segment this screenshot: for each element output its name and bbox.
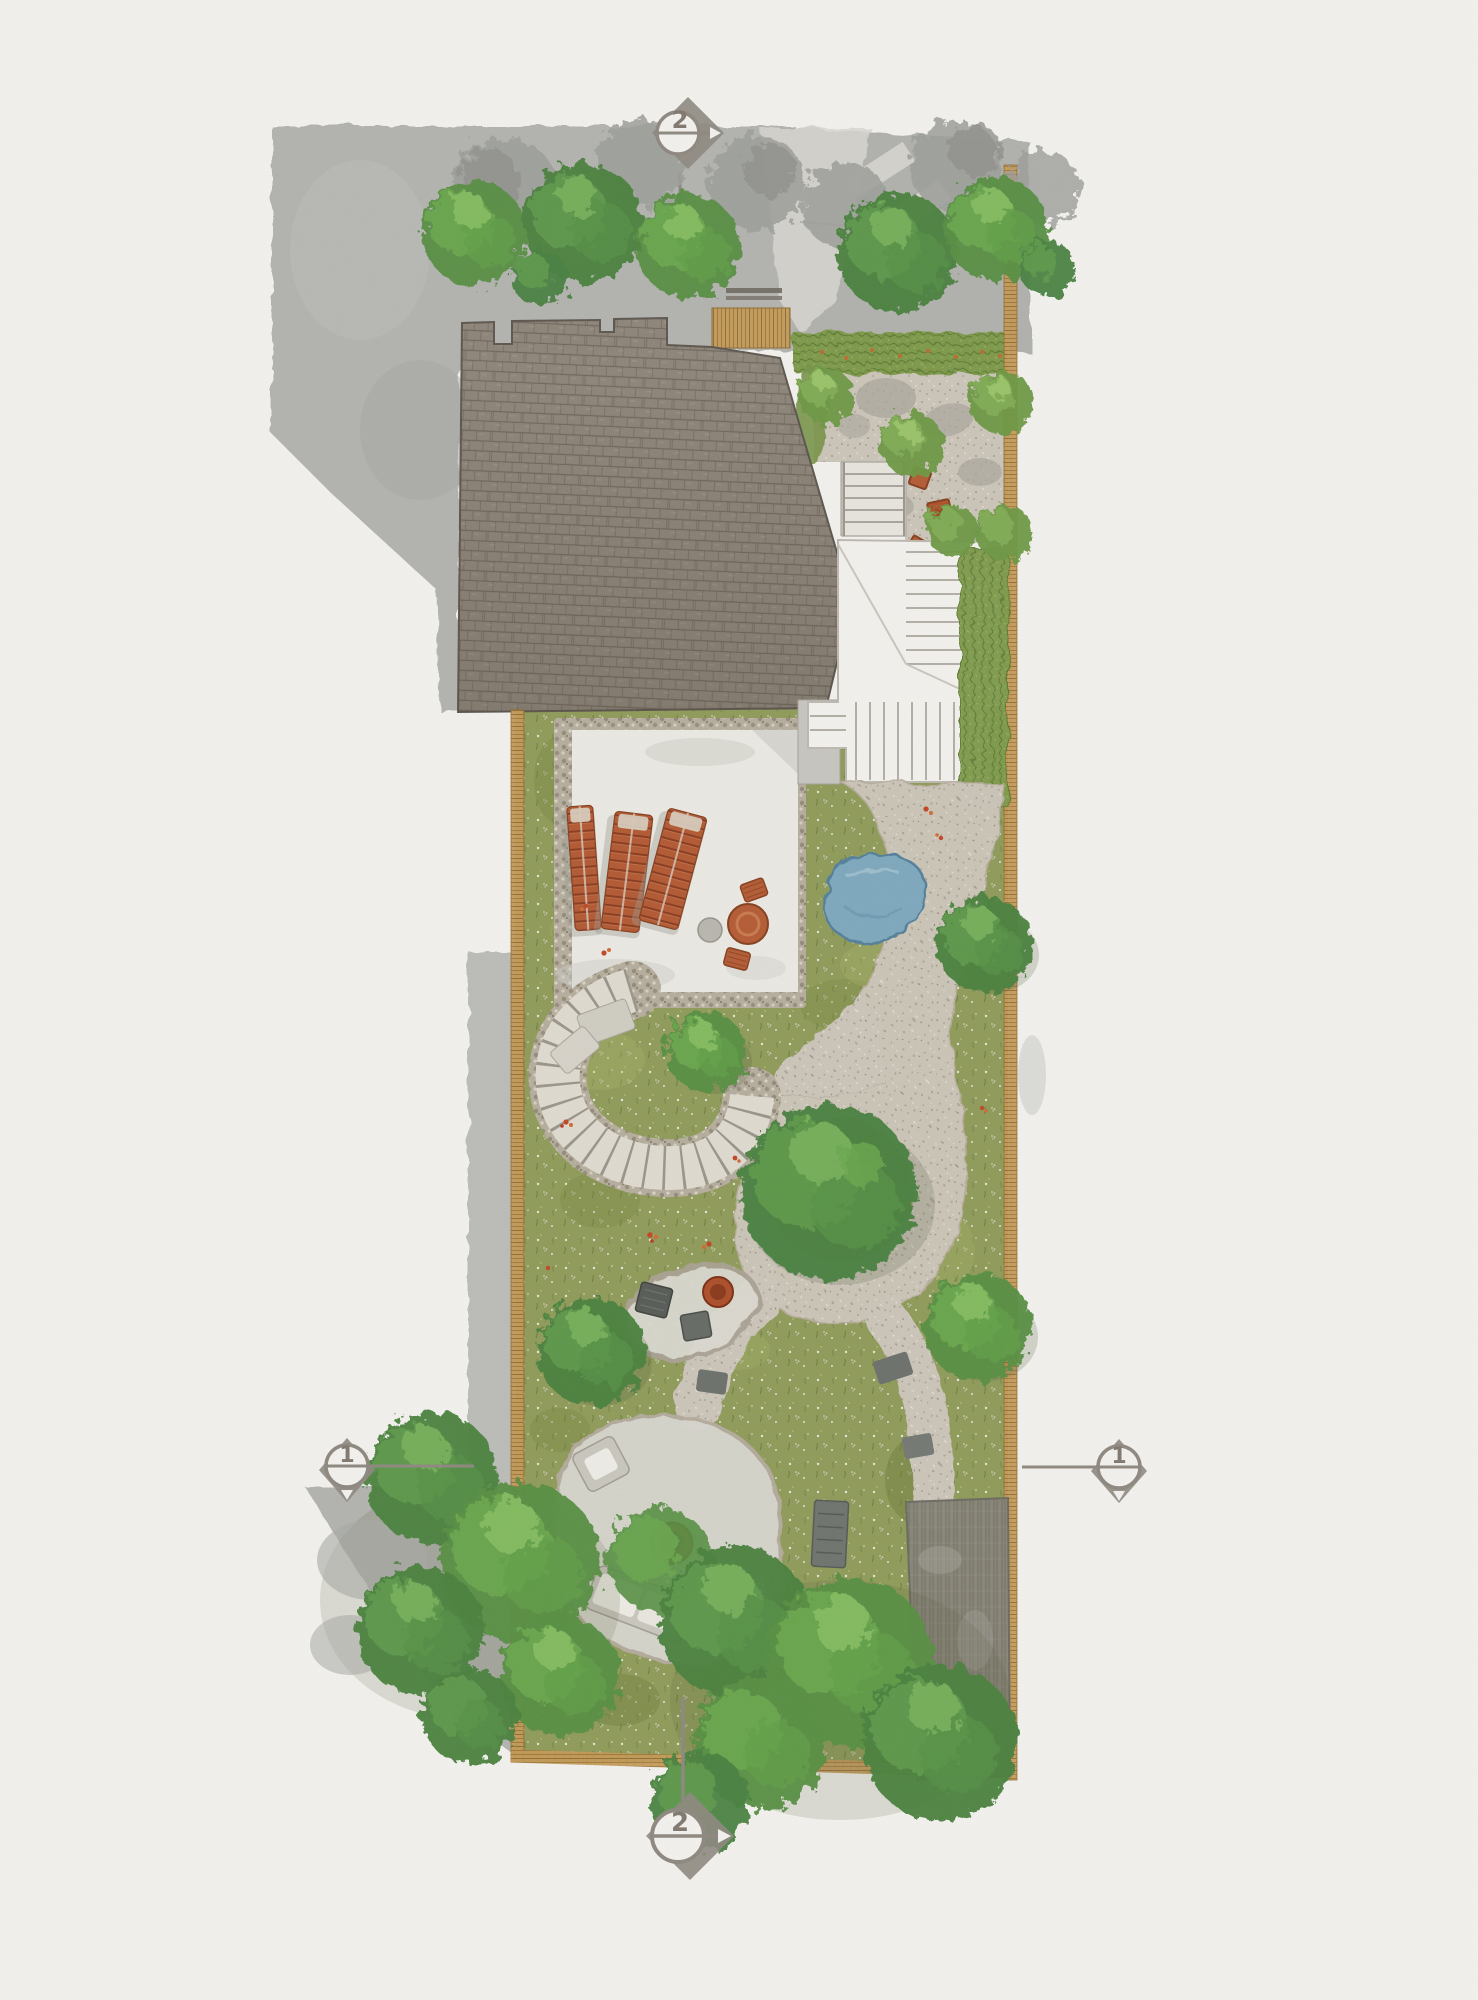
garden-bench bbox=[811, 1500, 848, 1568]
shrub bbox=[970, 370, 1034, 434]
tree bbox=[636, 194, 740, 298]
fire-bowl bbox=[703, 1277, 733, 1307]
tree bbox=[666, 1012, 746, 1092]
marker-label: 1 bbox=[339, 1443, 354, 1468]
shrub bbox=[880, 412, 944, 476]
entry-gate bbox=[712, 308, 790, 348]
boundary-hedge bbox=[960, 548, 1008, 810]
tree bbox=[937, 897, 1033, 993]
tree bbox=[538, 1298, 646, 1406]
patio bbox=[554, 718, 806, 1008]
tree bbox=[741, 1104, 917, 1280]
side-paving-strip bbox=[468, 952, 516, 1492]
paving-highlight bbox=[290, 160, 430, 340]
tree bbox=[422, 1668, 518, 1764]
side-stool bbox=[698, 918, 722, 942]
patio-shade bbox=[645, 738, 755, 766]
tree bbox=[1019, 240, 1075, 296]
nook-stool bbox=[680, 1311, 712, 1341]
side-paving-patch bbox=[1018, 1035, 1046, 1115]
tree bbox=[924, 1273, 1032, 1381]
tree bbox=[512, 250, 568, 306]
marker-label: 1 bbox=[1111, 1444, 1126, 1469]
marker-label: 2 bbox=[672, 106, 689, 134]
entry-steps bbox=[842, 462, 906, 536]
front-hedge bbox=[792, 332, 1008, 374]
bistro-table bbox=[728, 904, 768, 944]
shrub bbox=[976, 504, 1032, 560]
garden-plan-sheet: 2 2 1 1 bbox=[0, 0, 1478, 2000]
tree bbox=[862, 1664, 1018, 1820]
shrub bbox=[926, 504, 978, 556]
shrub bbox=[798, 368, 854, 424]
house-roof bbox=[458, 318, 840, 712]
marker-label: 2 bbox=[671, 1808, 689, 1838]
tree bbox=[838, 193, 958, 313]
tree bbox=[422, 181, 526, 285]
plan-drawing: 2 2 1 1 bbox=[0, 0, 1478, 2000]
tree bbox=[500, 1616, 620, 1736]
